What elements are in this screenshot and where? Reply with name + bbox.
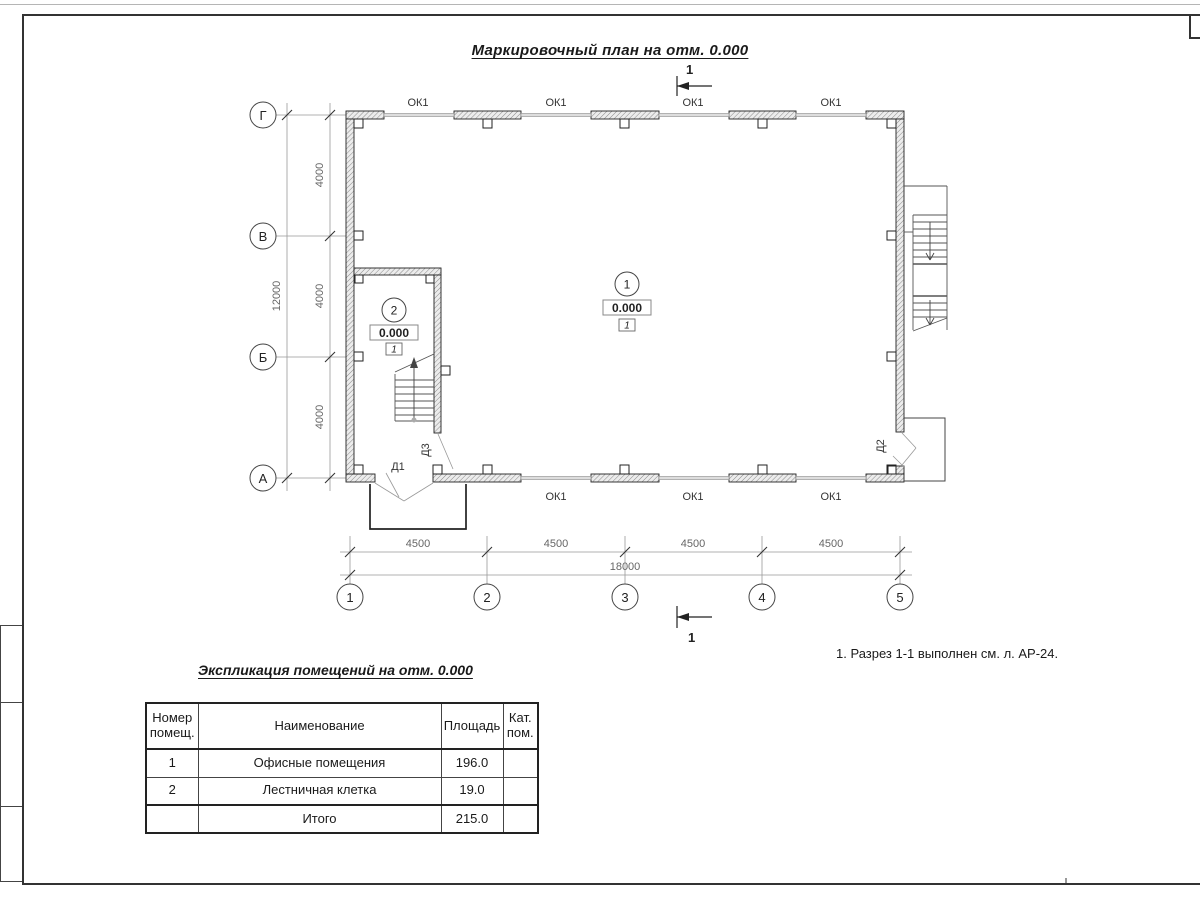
- stair-start-mark: [412, 418, 417, 423]
- room-schedule: Номер помещ. Наименование Площадь Кат. п…: [145, 702, 539, 834]
- entrance-porch-bottom: [370, 484, 466, 529]
- section-mark-top: [677, 76, 712, 96]
- dim-4000-3: 4000: [314, 405, 326, 429]
- dim-4500-1: 4500: [406, 538, 430, 550]
- room-marker-1: 1 0.000 1: [603, 272, 651, 332]
- cell-empty: [503, 805, 538, 833]
- room-number: 2: [391, 304, 398, 318]
- exterior-staircase: [904, 186, 947, 331]
- dim-4000-1: 4000: [314, 163, 326, 187]
- axis-col-1: 1: [346, 590, 353, 605]
- floor-type-mark: 1: [624, 321, 630, 332]
- total-area: 215.0: [441, 805, 503, 833]
- axis-row-g: Г: [259, 108, 266, 123]
- windows: [384, 114, 866, 480]
- axis-col-5: 5: [896, 590, 903, 605]
- dim-4500-2: 4500: [544, 538, 568, 550]
- door-label-d1: Д1: [391, 461, 405, 473]
- stair-up-arrow: [410, 357, 418, 368]
- axis-row-v: В: [259, 229, 268, 244]
- axis-row-a: А: [259, 471, 268, 486]
- total-label: Итого: [198, 805, 441, 833]
- door-label-d3: Д3: [420, 443, 432, 457]
- cell-name: Офисные помещения: [198, 749, 441, 777]
- dim-4500-3: 4500: [681, 538, 705, 550]
- window-label: ОК1: [545, 97, 566, 109]
- cell-area: 19.0: [441, 777, 503, 805]
- exterior-walls: [346, 111, 904, 482]
- axis-col-3: 3: [621, 590, 628, 605]
- window-label: ОК1: [820, 491, 841, 503]
- room-elevation: 0.000: [379, 326, 409, 340]
- cell-category: [503, 777, 538, 805]
- cell-name: Лестничная клетка: [198, 777, 441, 805]
- schedule-header-row: Номер помещ. Наименование Площадь Кат. п…: [146, 703, 538, 749]
- col-header-name: Наименование: [198, 703, 441, 749]
- room-elevation: 0.000: [612, 301, 642, 315]
- dimension-ticks: [282, 110, 905, 580]
- cell-number: 1: [146, 749, 198, 777]
- schedule-row: 2 Лестничная клетка 19.0: [146, 777, 538, 805]
- room-number: 1: [624, 278, 631, 292]
- axis-col-4: 4: [758, 590, 765, 605]
- section-label-top: 1: [686, 62, 693, 77]
- cell-category: [503, 749, 538, 777]
- dim-12000: 12000: [271, 281, 283, 312]
- window-label: ОК1: [820, 97, 841, 109]
- drawing-sheet: Маркировочный план на отм. 0.000 1. Разр…: [0, 0, 1200, 900]
- schedule-table: Номер помещ. Наименование Площадь Кат. п…: [145, 702, 539, 834]
- room-marker-2: 2 0.000 1: [370, 298, 418, 356]
- window-label: ОК1: [682, 97, 703, 109]
- col-header-category: Кат. пом.: [503, 703, 538, 749]
- window-label: ОК1: [407, 97, 428, 109]
- schedule-row: 1 Офисные помещения 196.0: [146, 749, 538, 777]
- cell-number: 2: [146, 777, 198, 805]
- window-label: ОК1: [545, 491, 566, 503]
- section-mark-bottom: [677, 606, 712, 628]
- section-label-bottom: 1: [688, 630, 695, 645]
- cell-area: 196.0: [441, 749, 503, 777]
- entrance-porch-right: [904, 418, 945, 481]
- dim-4000-2: 4000: [314, 284, 326, 308]
- dim-4500-4: 4500: [819, 538, 843, 550]
- col-header-area: Площадь: [441, 703, 503, 749]
- floor-type-mark: 1: [391, 345, 397, 356]
- door-label-d2: Д2: [875, 439, 887, 453]
- schedule-total-row: Итого 215.0: [146, 805, 538, 833]
- col-header-number: Номер помещ.: [146, 703, 198, 749]
- window-label: ОК1: [682, 491, 703, 503]
- axis-row-b: Б: [259, 350, 268, 365]
- cell-empty: [146, 805, 198, 833]
- dimension-lines: [276, 103, 912, 585]
- axis-col-2: 2: [483, 590, 490, 605]
- dim-18000: 18000: [610, 561, 641, 573]
- schedule-title: Экспликация помещений на отм. 0.000: [198, 662, 473, 678]
